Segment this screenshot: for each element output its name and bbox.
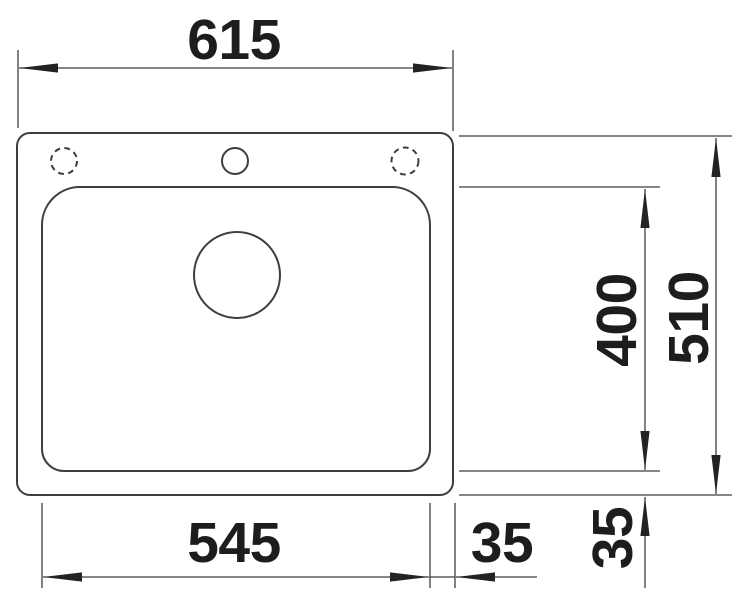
- dimension-rim-bottom: 35: [581, 497, 645, 588]
- dim-label-bowl-depth: 400: [585, 273, 649, 367]
- dimension-rim-right: 35: [430, 503, 537, 588]
- dimension-bowl-width: 545: [42, 503, 430, 588]
- dimension-bowl-depth: 400: [459, 187, 660, 471]
- dim-label-rim-right: 35: [471, 511, 533, 575]
- dim-label-overall-width: 615: [187, 8, 281, 72]
- sink-dimension-drawing: 615 400 510 545 35: [0, 0, 744, 603]
- sink-body: [17, 133, 453, 495]
- drawing-page: 615 400 510 545 35: [0, 0, 744, 603]
- dim-label-bowl-width: 545: [187, 511, 281, 575]
- dimension-overall-width: 615: [18, 8, 453, 131]
- dim-label-rim-bottom: 35: [581, 507, 645, 569]
- dim-label-overall-depth: 510: [657, 271, 721, 365]
